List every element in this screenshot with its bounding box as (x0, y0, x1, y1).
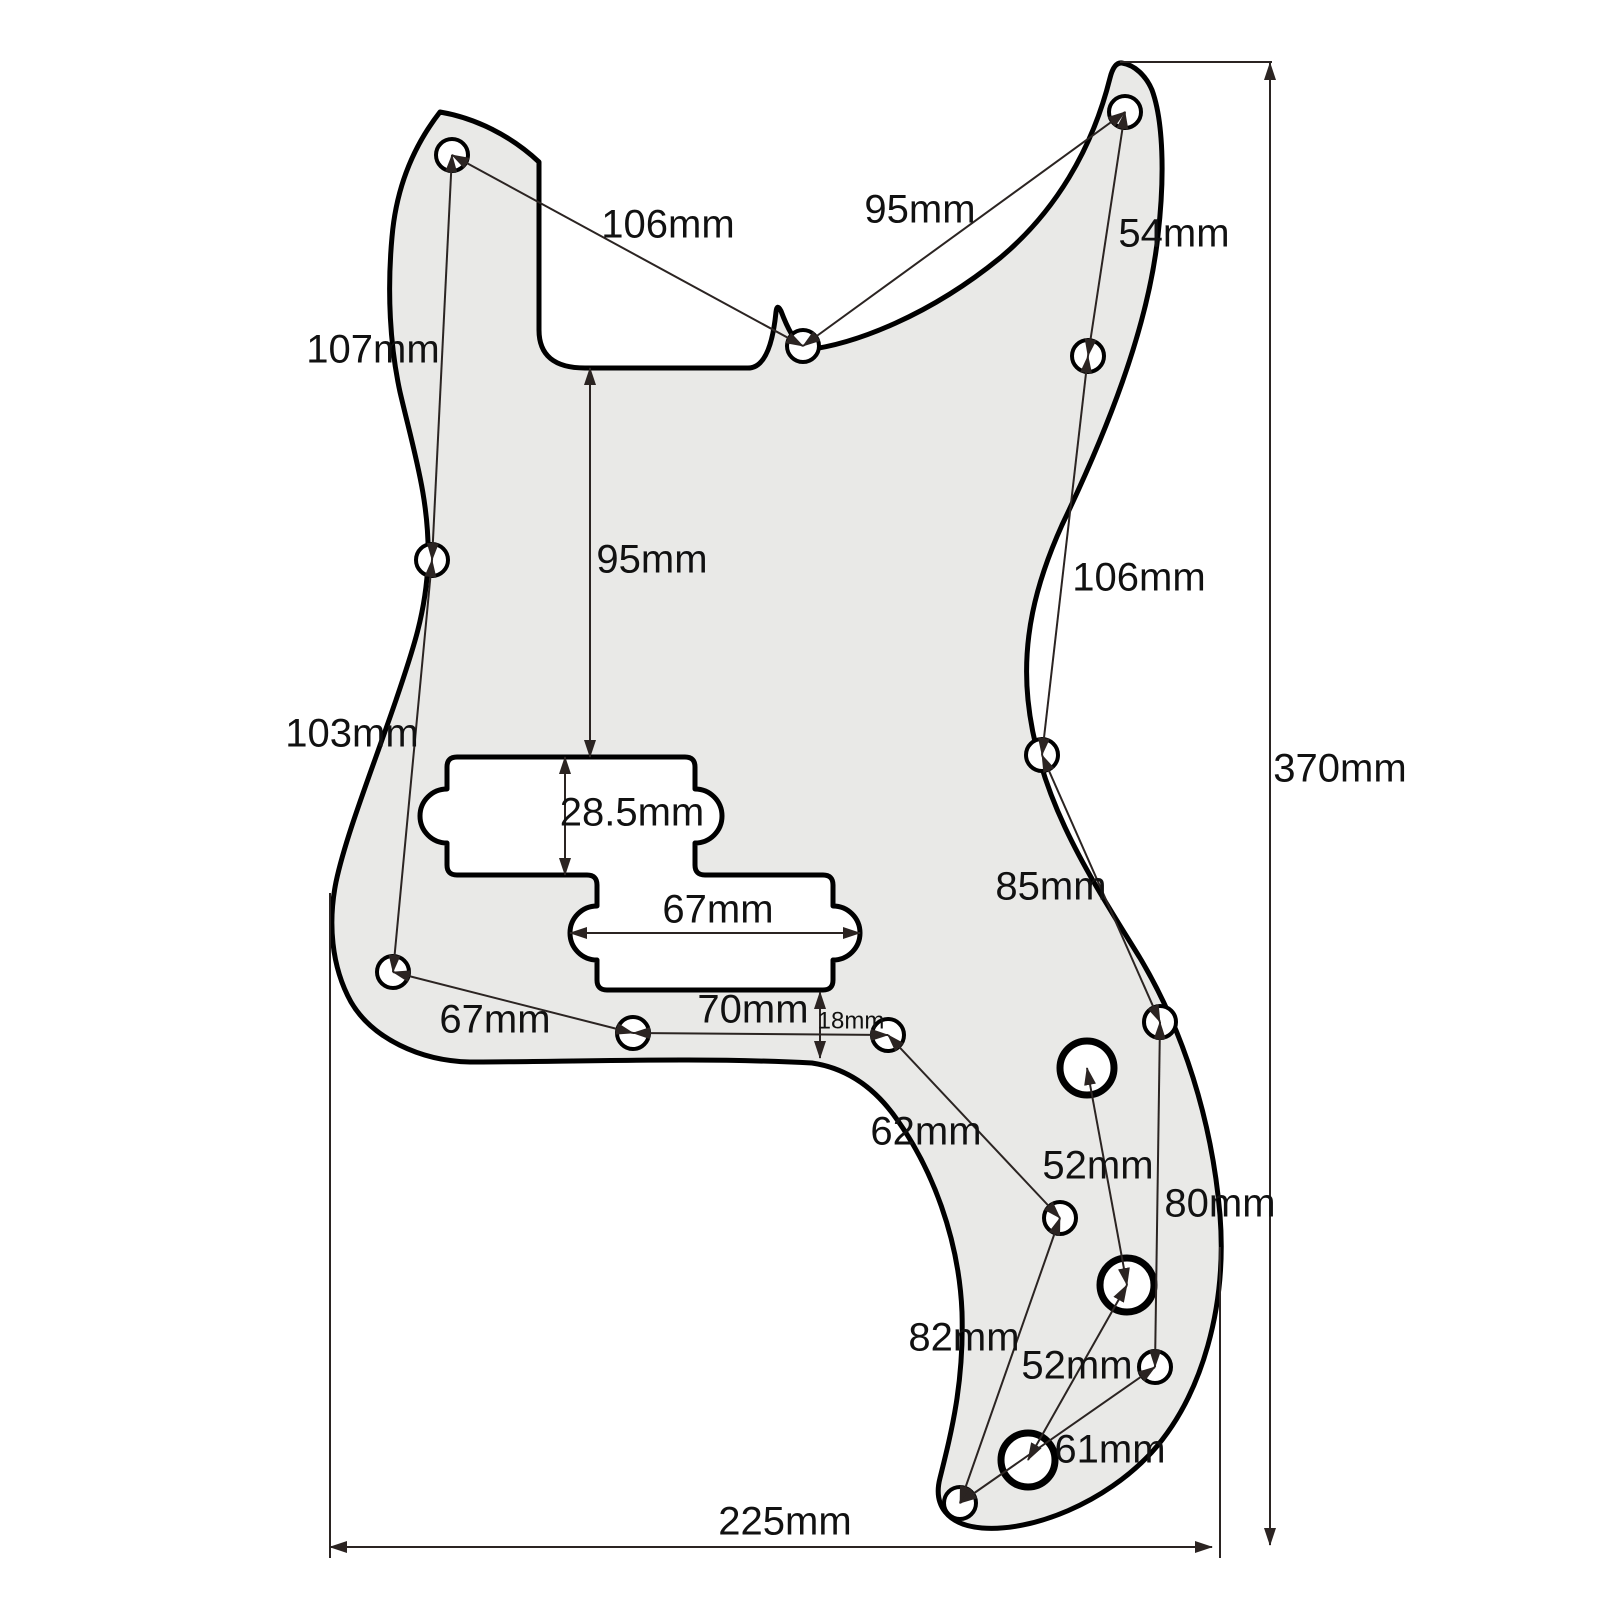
dimension-label: 95mm (864, 188, 975, 232)
dimension-label: 106mm (601, 203, 734, 247)
dimension-label: 225mm (718, 1500, 851, 1544)
dimension-label: 62mm (870, 1110, 981, 1154)
dimension-label: 61mm (1054, 1428, 1165, 1472)
dimension-label: 52mm (1042, 1144, 1153, 1188)
diagram-canvas: 106mm95mm54mm107mm95mm106mm103mm28.5mm67… (0, 0, 1600, 1600)
dimension-label: 370mm (1273, 747, 1406, 791)
dimension-label: 28.5mm (560, 791, 705, 835)
dimension-label: 67mm (662, 888, 773, 932)
dimension-label: 70mm (697, 988, 808, 1032)
dimension-label: 54mm (1118, 212, 1229, 256)
dimension-label: 67mm (439, 998, 550, 1042)
dimension-label: 95mm (596, 538, 707, 582)
dimension-label: 52mm (1021, 1344, 1132, 1388)
dimension-label: 82mm (908, 1316, 1019, 1360)
dimension-label: 80mm (1164, 1182, 1275, 1226)
dimension-label: 18mm (818, 1007, 885, 1034)
dimension-label: 107mm (306, 328, 439, 372)
pickguard-shape-layer (332, 63, 1221, 1528)
dimension-label: 85mm (995, 865, 1106, 909)
pickguard-dimension-diagram: 106mm95mm54mm107mm95mm106mm103mm28.5mm67… (0, 0, 1600, 1600)
dimension-label: 103mm (285, 712, 418, 756)
dimension-label: 106mm (1072, 556, 1205, 600)
